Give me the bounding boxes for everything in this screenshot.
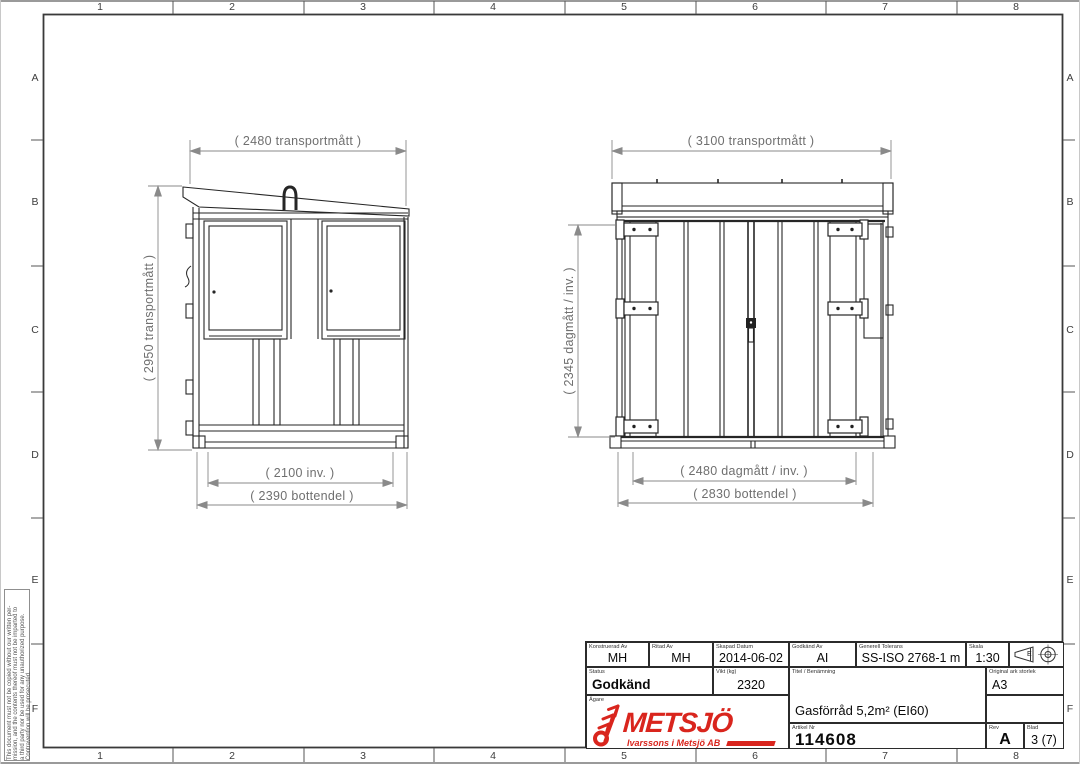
projection-symbol-cell: E bbox=[1009, 642, 1064, 667]
revision: A bbox=[987, 731, 1023, 748]
side-view-drawing bbox=[183, 187, 409, 448]
drawing-title: Gasförråd 5,2m² (EI60) bbox=[790, 698, 985, 722]
dim-front-bottom: ( 2830 bottendel ) bbox=[693, 487, 796, 501]
grid-col-label: 4 bbox=[490, 750, 496, 762]
dim-side-inner: ( 2100 inv. ) bbox=[266, 466, 335, 480]
grid-col-label: 3 bbox=[360, 1, 366, 13]
grid-col-label: 7 bbox=[882, 1, 888, 13]
grid-row-label: C bbox=[31, 324, 39, 336]
field-artikel-nr: Artikel Nr 114608 bbox=[789, 723, 986, 749]
title-block: Konstruerad Av MH Ritad Av MH Skapad Dat… bbox=[585, 641, 1063, 748]
field-generell-tolerans: Generell Tolerans SS-ISO 2768-1 m bbox=[856, 642, 966, 667]
metsjo-logo-text: METSJÖ bbox=[622, 707, 733, 739]
grid-col-label: 2 bbox=[229, 1, 235, 13]
field-value: 2320 bbox=[714, 675, 788, 694]
grid-row-label: C bbox=[1066, 324, 1074, 336]
field-titel-benamning: Titel / Benämning Gasförråd 5,2m² (EI60) bbox=[789, 667, 986, 723]
grid-col-label: 1 bbox=[97, 750, 103, 762]
dim-front-top: ( 3100 transportmått ) bbox=[688, 134, 815, 148]
grid-col-label: 1 bbox=[97, 1, 103, 13]
grid-row-label: B bbox=[31, 196, 38, 208]
dim-side-top: ( 2480 transportmått ) bbox=[235, 134, 362, 148]
field-value: 2014-06-02 bbox=[714, 650, 788, 666]
logo-underline bbox=[726, 741, 775, 746]
field-value: Godkänd bbox=[587, 675, 712, 694]
grid-col-label: 6 bbox=[752, 750, 758, 762]
copyright-line: mission, and the contents thereof must n… bbox=[13, 592, 19, 760]
grid-col-label: 8 bbox=[1013, 1, 1019, 13]
field-rev: Rev A bbox=[986, 723, 1024, 749]
field-agare-logo: Ägare METSJÖ Ivarssons i Metsjö AB bbox=[586, 695, 789, 749]
copyright-line: Contravention will be prosecuted. bbox=[26, 592, 32, 760]
grid-col-label: 8 bbox=[1013, 750, 1019, 762]
grid-row-label: D bbox=[1066, 449, 1074, 461]
field-skapad-datum: Skapad Datum 2014-06-02 bbox=[713, 642, 789, 667]
grid-col-label: 4 bbox=[490, 1, 496, 13]
dim-front-inner: ( 2480 dagmått / inv. ) bbox=[680, 464, 808, 478]
field-vikt: Vikt (kg) 2320 bbox=[713, 667, 789, 695]
field-skala: Skala 1:30 bbox=[966, 642, 1009, 667]
copyright-line: a third party nor be used for any unauth… bbox=[20, 592, 26, 760]
field-value: 1:30 bbox=[967, 650, 1008, 666]
field-original-ark: Original ark storlek A3 bbox=[986, 667, 1064, 695]
grid-col-label: 3 bbox=[360, 750, 366, 762]
grid-row-label: A bbox=[1066, 72, 1073, 84]
grid-col-label: 5 bbox=[621, 1, 627, 13]
field-ritad-av: Ritad Av MH bbox=[649, 642, 713, 667]
field-label: Titel / Benämning bbox=[792, 669, 835, 675]
grid-row-label: D bbox=[31, 449, 39, 461]
drawing-sheet: 1 2 3 4 5 6 7 8 1 2 3 4 5 6 7 8 A B C D … bbox=[0, 0, 1080, 764]
metsjo-tree-icon bbox=[592, 701, 626, 747]
grid-col-label: 5 bbox=[621, 750, 627, 762]
empty-cell bbox=[986, 695, 1064, 723]
projection-letter: E bbox=[1027, 651, 1032, 658]
grid-row-label: E bbox=[1066, 574, 1073, 586]
grid-row-label: E bbox=[31, 574, 38, 586]
dim-side-height: ( 2950 transportmått ) bbox=[142, 255, 156, 382]
field-value: AI bbox=[790, 650, 855, 666]
grid-row-label: F bbox=[1067, 703, 1073, 715]
grid-row-label: F bbox=[32, 703, 38, 715]
grid-col-label: 7 bbox=[882, 750, 888, 762]
field-value: A3 bbox=[987, 675, 1063, 694]
field-konstruerad-av: Konstruerad Av MH bbox=[586, 642, 649, 667]
dim-side-bottom: ( 2390 bottendel ) bbox=[250, 489, 353, 503]
sheet-number: 3 (7) bbox=[1025, 731, 1063, 748]
field-value: MH bbox=[587, 650, 648, 666]
copyright-notice: This document must not be copied without… bbox=[4, 589, 30, 761]
field-value: SS-ISO 2768-1 m bbox=[857, 650, 965, 666]
grid-row-label: B bbox=[1066, 196, 1073, 208]
field-status: Status Godkänd bbox=[586, 667, 713, 695]
field-blad: Blad 3 (7) bbox=[1024, 723, 1064, 749]
field-value: MH bbox=[650, 650, 712, 666]
article-number: 114608 bbox=[790, 731, 985, 748]
grid-row-label: A bbox=[31, 72, 38, 84]
field-godkand-av: Godkänd Av AI bbox=[789, 642, 856, 667]
front-view-drawing bbox=[610, 179, 895, 448]
grid-col-label: 2 bbox=[229, 750, 235, 762]
dim-front-height: ( 2345 dagmått / inv. ) bbox=[562, 267, 576, 395]
first-angle-projection-icon bbox=[1010, 643, 1063, 666]
grid-col-label: 6 bbox=[752, 1, 758, 13]
metsjo-logo-tagline: Ivarssons i Metsjö AB bbox=[627, 738, 720, 748]
